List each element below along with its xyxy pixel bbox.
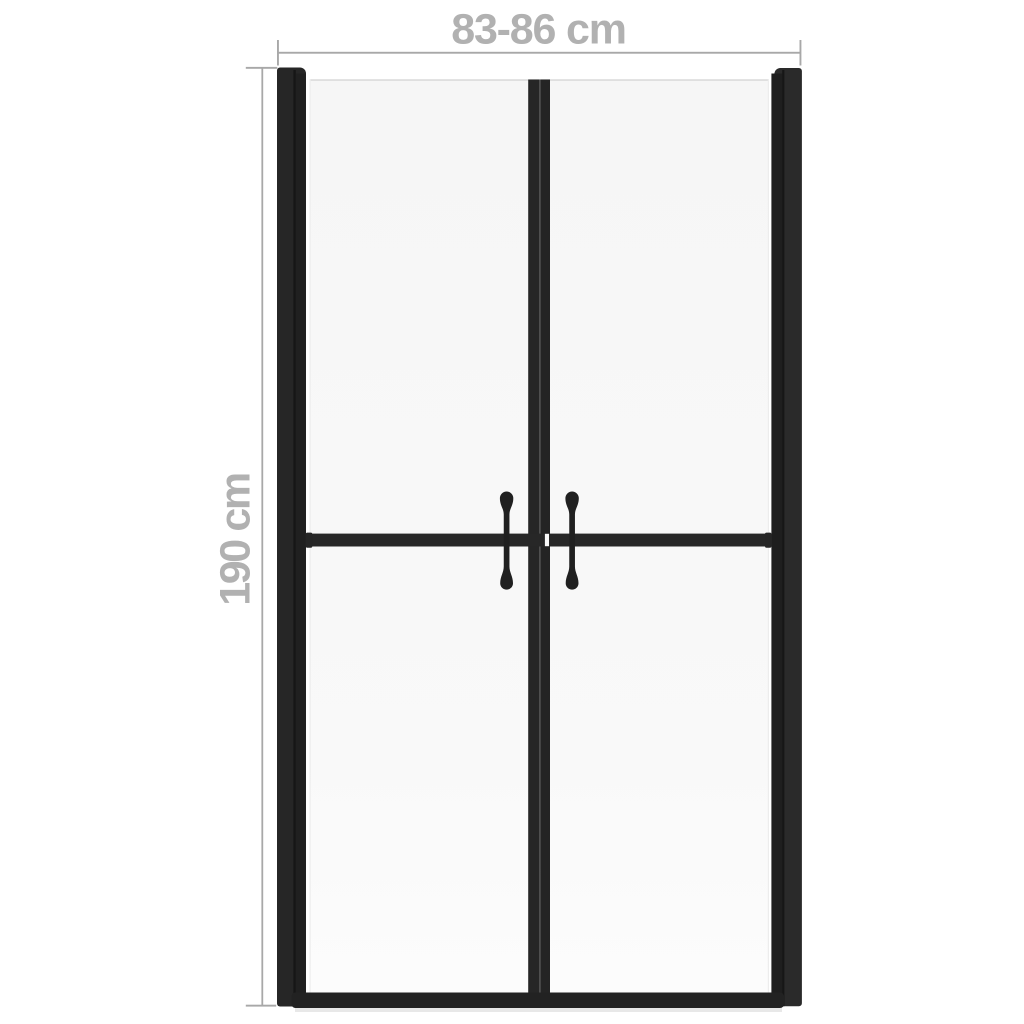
svg-text:190 cm: 190 cm — [212, 474, 260, 606]
svg-text:83-86 cm: 83-86 cm — [451, 6, 625, 54]
